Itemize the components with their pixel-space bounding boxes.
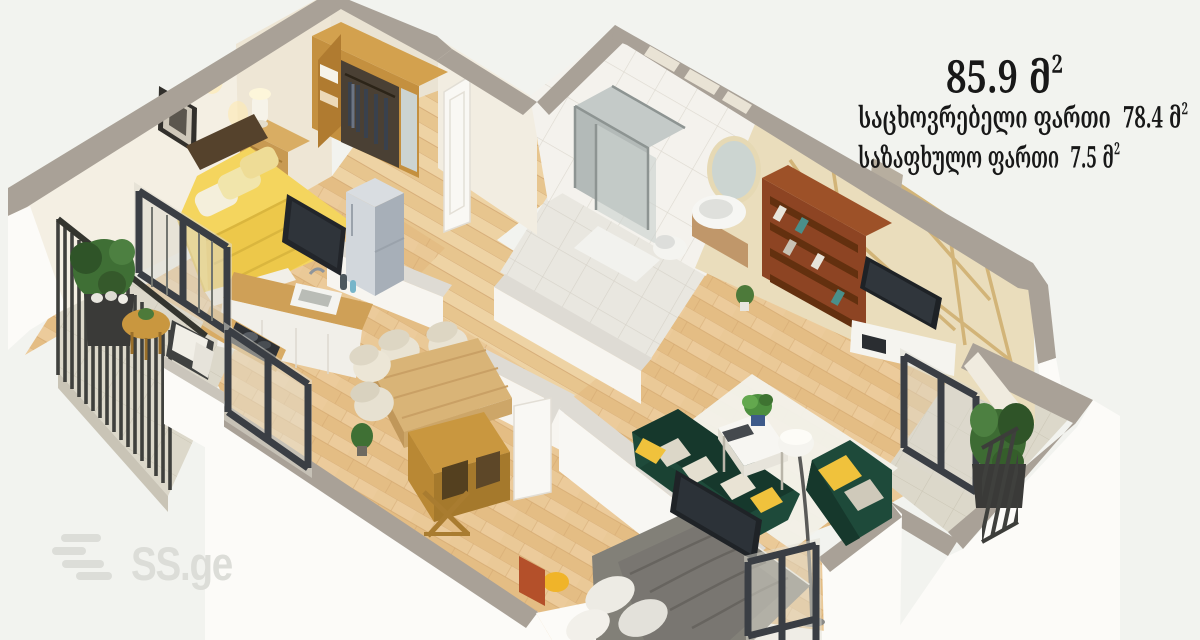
svg-text:SS.ge: SS.ge [131, 537, 232, 590]
